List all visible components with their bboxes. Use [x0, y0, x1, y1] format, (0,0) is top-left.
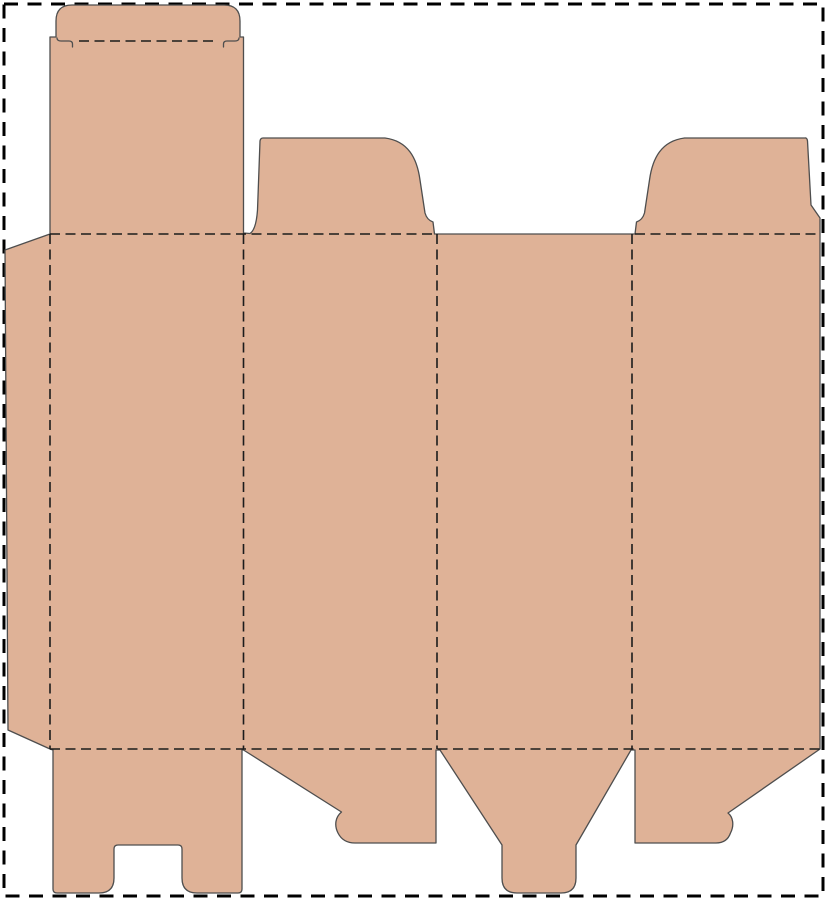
- dieline-sheet: [0, 0, 827, 900]
- dieline-canvas: [0, 0, 827, 900]
